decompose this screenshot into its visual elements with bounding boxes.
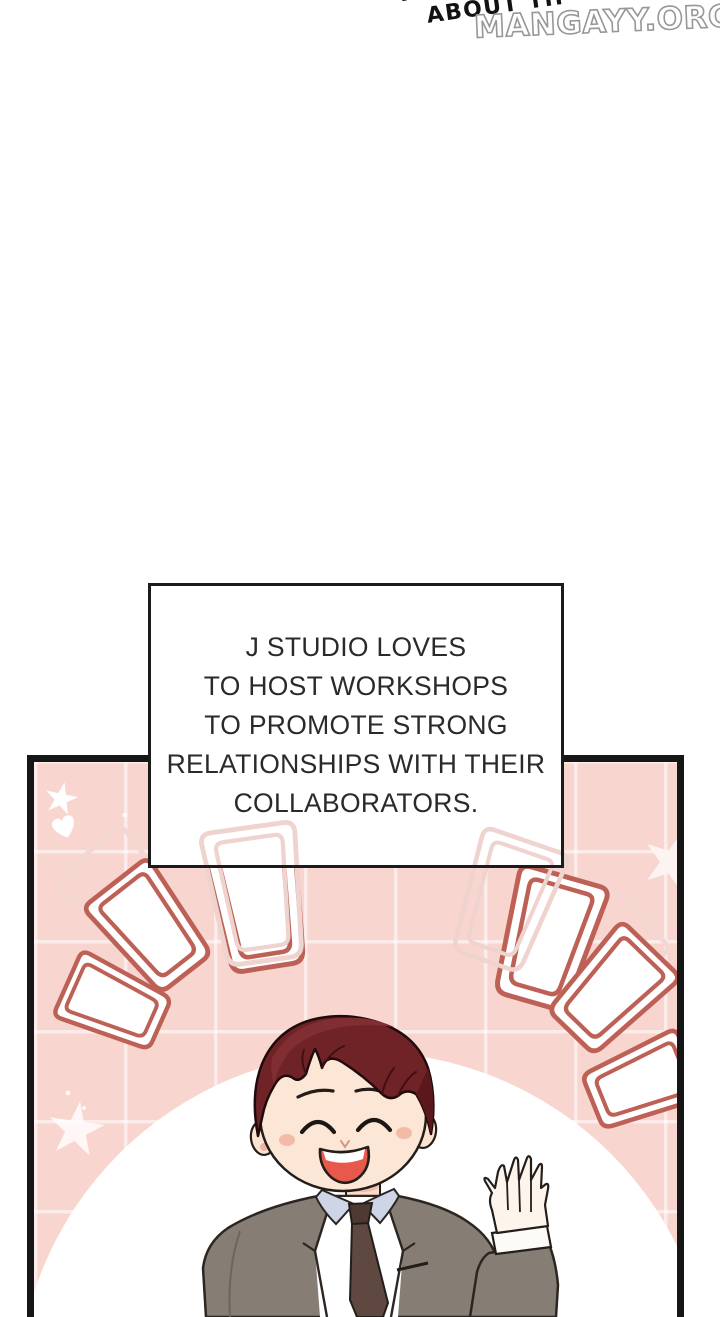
heart-icon	[51, 814, 79, 841]
sparkle-dot	[66, 1091, 71, 1096]
star-icon	[42, 779, 80, 816]
caption-line: TO HOST WORKSHOPS	[204, 667, 509, 706]
star-icon	[636, 823, 677, 895]
sparkle-dot	[82, 1106, 86, 1110]
manga-page: I TOL ABOUT TH MangaYY.Org	[0, 0, 720, 1317]
caption-line: RELATIONSHIPS WITH THEIR	[167, 745, 546, 784]
caption-box: J STUDIO LOVES TO HOST WORKSHOPS TO PROM…	[148, 583, 564, 868]
caption-line: TO PROMOTE STRONG	[204, 706, 507, 745]
caption-line: J STUDIO LOVES	[246, 628, 467, 667]
caption-line: COLLABORATORS.	[234, 784, 479, 823]
sparkle-dot	[123, 813, 128, 818]
star-icon	[45, 1097, 107, 1157]
